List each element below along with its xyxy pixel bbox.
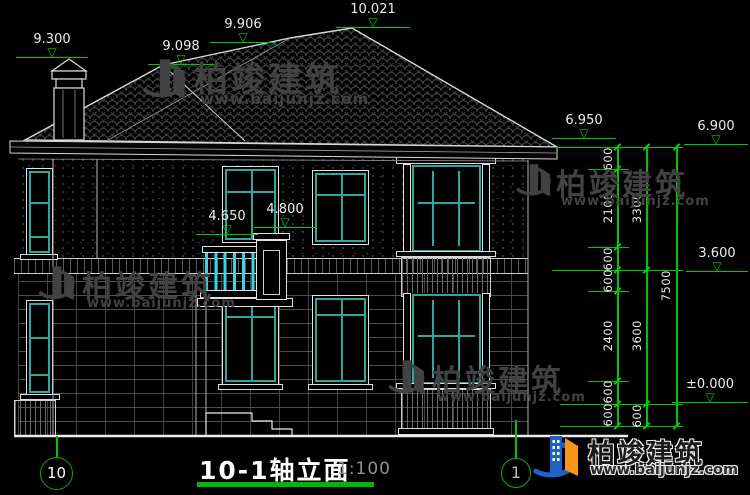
entrance-steps	[206, 413, 292, 436]
elevation-marker-9300: 9.300▽	[16, 33, 88, 58]
level-triangle-icon: ▽	[672, 392, 748, 402]
level-triangle-icon: ▽	[254, 217, 316, 227]
watermark-logo-icon	[138, 52, 192, 110]
watermark-url: www.baijunjz.com	[200, 90, 369, 108]
dim-text: 3600	[631, 320, 643, 351]
title-underline	[197, 482, 374, 487]
dim-text: 600	[602, 380, 614, 403]
elevation-marker-4800: 4.800▽	[254, 203, 316, 228]
elevation-marker-10021: 10.021▽	[336, 3, 410, 28]
dim-text: 600	[631, 404, 643, 427]
level-triangle-icon: ▽	[336, 17, 410, 27]
elevation-marker-6900: 6.900▽	[684, 120, 748, 145]
company-logo-url: www.baijunjz.com	[590, 462, 738, 478]
extension-line	[560, 426, 683, 427]
dim-text: 7500	[660, 270, 672, 301]
level-triangle-icon: ▽	[686, 261, 748, 271]
level-triangle-icon: ▽	[16, 47, 88, 57]
elevation-marker-0000: ±0.000▽	[672, 378, 748, 403]
dim-text: 2400	[602, 320, 614, 351]
level-triangle-icon: ▽	[196, 224, 258, 234]
elevation-drawing-canvas: 600 2100 600 600 2400 600 600 3300 3600 …	[0, 0, 750, 495]
level-triangle-icon: ▽	[684, 134, 748, 144]
dim-text: 600	[602, 247, 614, 270]
axis-line-1	[515, 420, 517, 458]
level-triangle-icon: ▽	[210, 32, 276, 42]
elevation-marker-9906: 9.906▽	[210, 18, 276, 43]
axis-bubble-left: 10	[40, 457, 73, 490]
dim-text: 600	[602, 269, 614, 292]
elevation-marker-4650: 4.650▽	[196, 210, 258, 235]
level-triangle-icon: ▽	[552, 128, 616, 138]
chimney	[52, 59, 86, 140]
watermark-logo-icon	[512, 158, 556, 206]
drawing-scale: 1:100	[337, 459, 391, 479]
watermark-logo-icon	[384, 354, 430, 404]
elevation-marker-6950: 6.950▽	[552, 114, 616, 139]
watermark-logo-icon	[34, 260, 80, 310]
watermark-url: www.baijunjz.com	[87, 296, 236, 311]
watermark-url: www.baijunjz.com	[437, 390, 586, 405]
wall-top-line	[18, 159, 528, 161]
axis-line-10	[56, 436, 58, 458]
watermark-url: www.baijunjz.com	[561, 194, 710, 209]
dim-text: 600	[602, 403, 614, 426]
company-logo-icon	[526, 428, 586, 490]
elevation-marker-3600: 3.600▽	[686, 247, 748, 272]
